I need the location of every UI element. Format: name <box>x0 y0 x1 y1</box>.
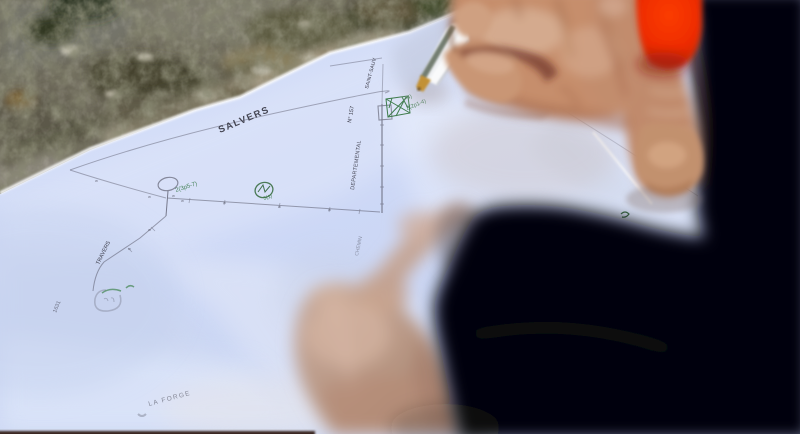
svg-text:w: w <box>172 193 175 198</box>
svg-text:w: w <box>148 194 151 199</box>
svg-text:w: w <box>95 178 98 183</box>
svg-text:w: w <box>328 207 331 212</box>
svg-text:w: w <box>148 227 151 232</box>
svg-text:w: w <box>128 246 131 251</box>
svg-text:w: w <box>278 204 281 209</box>
svg-text:w: w <box>181 198 184 203</box>
svg-text:w: w <box>223 200 226 205</box>
